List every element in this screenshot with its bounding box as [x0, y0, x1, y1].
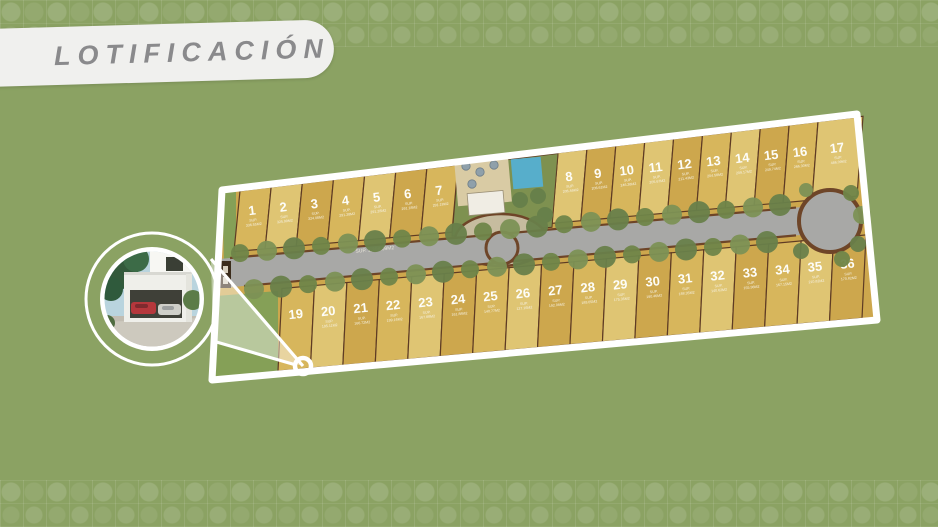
street-tree-bottom-19: [756, 231, 778, 253]
street-tree-top-5: [364, 230, 386, 252]
roundabout-tree-5: [793, 243, 809, 259]
lot-number-26: 26: [515, 285, 531, 301]
lot-number-30: 30: [645, 273, 661, 289]
street-tree-top-15: [636, 208, 654, 226]
amenity-tree-0: [512, 192, 528, 208]
lot-number-17: 17: [829, 140, 845, 157]
street-tree-bottom-17: [704, 238, 722, 256]
street-tree-bottom-13: [594, 246, 616, 268]
lot-number-25: 25: [482, 288, 498, 304]
roundabout-tree-0: [843, 185, 859, 201]
amenity-umbrella-1: [476, 168, 484, 176]
street-tree-top-4: [338, 233, 358, 253]
street-tree-top-17: [688, 201, 710, 223]
street-tree-top-14: [607, 208, 629, 230]
lot-number-28: 28: [580, 279, 596, 295]
lot-number-13: 13: [705, 153, 721, 170]
street-tree-top-1: [257, 241, 277, 261]
amenity-umbrella-2: [490, 161, 498, 169]
amenity-building: [467, 190, 505, 215]
street-tree-top-0: [231, 244, 249, 262]
street-tree-bottom-12: [568, 249, 588, 269]
street-tree-top-8: [445, 223, 467, 245]
lot-number-21: 21: [353, 300, 369, 316]
street-tree-bottom-1: [270, 276, 292, 298]
roundabout-tree-4: [799, 183, 813, 197]
street-tree-bottom-8: [461, 260, 479, 278]
street-tree-top-7: [419, 226, 439, 246]
amenity-pool: [511, 157, 544, 190]
amenity-tree-1: [530, 188, 546, 204]
street-tree-top-2: [283, 237, 305, 259]
lot-number-19: 19: [288, 306, 304, 322]
street-tree-bottom-9: [487, 257, 507, 277]
lot-number-10: 10: [619, 162, 635, 179]
title-banner: LOTIFICACIÓN: [0, 19, 335, 87]
lot-number-29: 29: [612, 276, 628, 292]
street-tree-bottom-6: [406, 264, 426, 284]
lot-number-15: 15: [763, 147, 779, 164]
amenity-umbrella-3: [468, 180, 476, 188]
photo-red-car-window: [135, 304, 148, 308]
street-tree-bottom-7: [432, 261, 454, 283]
street-tree-top-13: [581, 212, 601, 232]
street-tree-top-10: [500, 219, 520, 239]
roundabout-tree-3: [834, 251, 850, 267]
street-tree-top-9: [474, 222, 492, 240]
street-tree-bottom-3: [325, 272, 345, 292]
street-tree-bottom-11: [542, 253, 560, 271]
lot-number-35: 35: [807, 258, 823, 274]
photo-white-car-window: [162, 306, 174, 310]
lot-number-11: 11: [648, 159, 663, 176]
street-tree-bottom-2: [299, 275, 317, 293]
lot-number-27: 27: [547, 282, 563, 298]
lot-number-20: 20: [320, 303, 336, 319]
street-tree-bottom-15: [649, 242, 669, 262]
lot-number-31: 31: [677, 270, 693, 286]
lot-number-33: 33: [742, 264, 758, 280]
lot-number-32: 32: [710, 267, 726, 283]
street-tree-bottom-0: [244, 279, 264, 299]
lot-number-16: 16: [792, 143, 808, 160]
street-tree-bottom-5: [380, 268, 398, 286]
street-tree-top-12: [555, 215, 573, 233]
street-tree-bottom-4: [351, 268, 373, 290]
roundabout-tree-2: [850, 236, 866, 252]
lot-number-22: 22: [385, 297, 401, 313]
street-tree-bottom-18: [730, 235, 750, 255]
street-tree-top-6: [393, 230, 411, 248]
street-tree-bottom-14: [623, 245, 641, 263]
lot-number-12: 12: [676, 156, 692, 173]
lot-label-19: 19: [288, 306, 304, 322]
street-tree-bottom-16: [675, 238, 697, 260]
lot-number-23: 23: [418, 294, 434, 310]
street-tree-top-18: [717, 201, 735, 219]
lot-number-14: 14: [734, 150, 751, 167]
lot-number-34: 34: [774, 261, 791, 278]
page-title: LOTIFICACIÓN: [0, 33, 330, 74]
lot-number-24: 24: [450, 291, 467, 308]
street-tree-top-19: [743, 197, 763, 217]
photo-roof-edge: [124, 272, 192, 275]
street-tree-top-20: [769, 194, 791, 216]
street-tree-top-16: [662, 205, 682, 225]
lotification-slide: 1SUP.336.55M22SUP.325.99M23SUP.324.08M24…: [0, 0, 938, 527]
street-tree-top-3: [312, 237, 330, 255]
street-tree-bottom-10: [513, 253, 535, 275]
street-tree-top-11: [526, 216, 548, 238]
